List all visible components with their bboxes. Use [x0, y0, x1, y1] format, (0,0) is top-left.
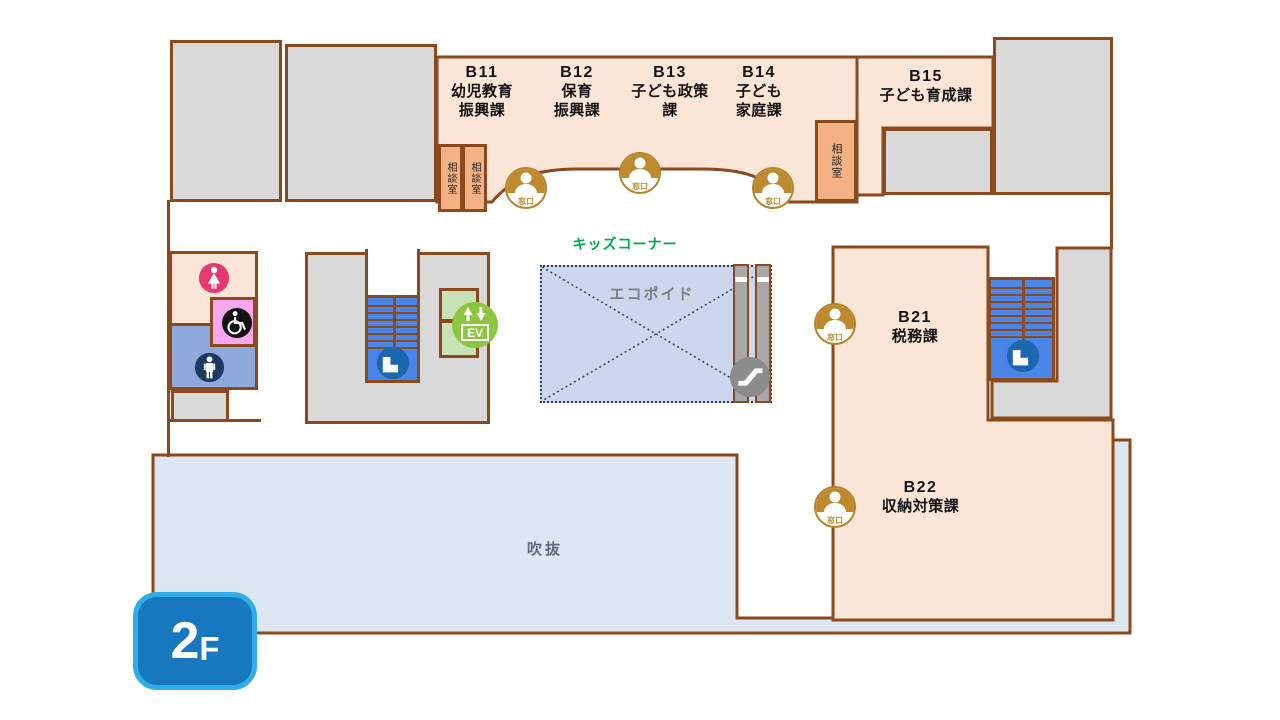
person-bust-icon	[816, 488, 854, 512]
gray-room-under-b15	[883, 128, 993, 195]
person-bust-icon	[816, 305, 854, 329]
gray-room-top-left-1	[170, 40, 282, 202]
consult-room-label: 相談室	[469, 162, 480, 195]
dept-name-line: 税務課	[892, 328, 939, 345]
male-icon	[194, 352, 225, 383]
stair-divider	[1022, 280, 1025, 344]
floor-map-canvas: 相談室 相談室 相談室 B11 幼児教育 振興課 B12 保育 振興課 B13 …	[0, 0, 1280, 720]
service-window-icon: 窓口	[814, 303, 856, 345]
atrium-label: 吹抜	[495, 538, 595, 559]
dept-code: B15	[860, 67, 992, 86]
dept-label-b12: B12 保育 振興課	[531, 63, 623, 120]
service-window-label: 窓口	[754, 198, 792, 206]
dept-name-line: 子ども	[736, 83, 783, 100]
left-stairwell-opening	[365, 249, 420, 295]
dept-name-line: 子ども政策	[631, 83, 709, 100]
dept-label-b22: B22 収納対策課	[848, 478, 993, 516]
escalator-strip-gap	[757, 277, 769, 282]
escalator-strip-gap	[735, 277, 747, 282]
dept-name-line: 家庭課	[736, 102, 783, 119]
dept-name-line: 収納対策課	[882, 498, 960, 515]
dept-code: B14	[711, 63, 807, 82]
dept-code: B21	[845, 308, 985, 327]
dept-code: B13	[615, 63, 725, 82]
dept-label-b11: B11 幼児教育 振興課	[426, 63, 538, 120]
dept-name-line: 子ども育成課	[879, 87, 972, 104]
dept-name-line: 振興課	[554, 102, 601, 119]
dept-label-b15: B15 子ども育成課	[860, 67, 992, 105]
dept-name-line: 課	[662, 102, 678, 119]
dept-name-line: 保育	[561, 83, 592, 100]
person-bust-icon	[507, 169, 545, 193]
wheelchair-icon	[221, 307, 253, 339]
service-window-label: 窓口	[816, 517, 854, 525]
service-window-icon: 窓口	[619, 152, 661, 194]
gray-room-top-right	[993, 37, 1113, 195]
female-icon	[198, 262, 230, 294]
service-window-label: 窓口	[621, 183, 659, 191]
elevator-icon: EV	[451, 301, 499, 349]
dept-name-line: 振興課	[459, 102, 506, 119]
service-window-icon: 窓口	[752, 167, 794, 209]
escalator-icon	[729, 356, 771, 398]
eco-void-label: エコポイド	[592, 283, 712, 304]
gray-stub-room	[171, 390, 229, 422]
floor-suffix: F	[199, 632, 219, 665]
consult-room-left-1: 相談室	[438, 144, 463, 212]
right-outer-wall	[1110, 193, 1113, 249]
floor-number: 2	[170, 615, 199, 667]
stair-divider	[393, 298, 396, 353]
dept-code: B12	[531, 63, 623, 82]
stairs-icon	[1006, 339, 1040, 373]
consult-room-label: 相談室	[830, 143, 842, 179]
person-bust-icon	[754, 169, 792, 193]
dept-label-b14: B14 子ども 家庭課	[711, 63, 807, 120]
gray-room-top-left-2	[285, 44, 437, 202]
consult-room-label: 相談室	[445, 162, 456, 195]
floor-badge: 2 F	[133, 592, 257, 690]
dept-label-b21: B21 税務課	[845, 308, 985, 346]
person-bust-icon	[621, 154, 659, 178]
consult-room-right: 相談室	[815, 120, 857, 202]
service-window-label: 窓口	[816, 334, 854, 342]
service-window-label: 窓口	[507, 198, 545, 206]
dept-code: B22	[848, 478, 993, 497]
dept-name-line: 幼児教育	[451, 83, 513, 100]
dept-code: B11	[426, 63, 538, 82]
dept-label-b13: B13 子ども政策 課	[615, 63, 725, 120]
kids-corner-label: キッズコーナー	[550, 234, 700, 254]
elevator-label: EV	[467, 326, 483, 340]
stairs-icon	[376, 346, 410, 380]
consult-room-left-2: 相談室	[462, 144, 487, 212]
service-window-icon: 窓口	[505, 167, 547, 209]
service-window-icon: 窓口	[814, 486, 856, 528]
